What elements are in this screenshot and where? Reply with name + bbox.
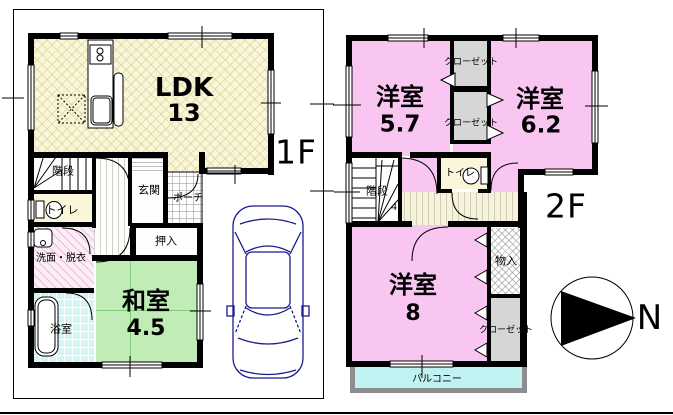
floor-plan: LDK 13 1F 階段 トイレ 玄関 ポーチ 洗面・脱衣 浴室 押入 和室 4… <box>0 0 673 415</box>
hall-1f <box>94 155 130 260</box>
western-8-size: 8 <box>405 303 420 325</box>
western-57-label: 洋室 <box>376 85 424 109</box>
western-62-entry <box>491 143 518 192</box>
landing-2f <box>398 158 437 192</box>
pink-patch <box>453 144 491 152</box>
futon-closet-label: 押入 <box>155 236 177 247</box>
floor2-label: 2F <box>545 190 587 223</box>
toilet-2f-label: トイレ <box>445 169 475 179</box>
western-8-label: 洋室 <box>389 273 437 297</box>
closet-bottom-label: クローゼット <box>479 327 533 336</box>
floor1-label: 1F <box>275 136 317 169</box>
balcony-label: バルコニー <box>412 375 462 385</box>
closet-mid-label: クローゼット <box>444 120 498 129</box>
western-62-size: 6.2 <box>521 115 562 138</box>
closet-top-label: クローゼット <box>444 59 498 68</box>
washroom-label: 洗面・脱衣 <box>36 254 86 264</box>
toilet-1f-label: トイレ <box>46 205 79 216</box>
bathroom-label: 浴室 <box>50 324 72 335</box>
north-label: N <box>637 301 663 335</box>
japanese-room-size: 4.5 <box>127 318 166 340</box>
room-closet-mid <box>453 92 487 140</box>
japanese-room-label: 和室 <box>122 289 170 313</box>
ldk-label: LDK <box>155 75 213 101</box>
western-62-label: 洋室 <box>516 87 564 111</box>
entrance-step <box>132 158 163 171</box>
stairs-2f-note: 4 <box>391 203 397 213</box>
stairs-2f-label: 階段 <box>366 186 388 197</box>
stairs-1f-label: 階段 <box>52 166 74 177</box>
western-57-size: 5.7 <box>380 114 421 137</box>
room-ldk <box>30 36 272 172</box>
ldk-size: 13 <box>167 101 200 125</box>
compass-icon <box>551 277 636 359</box>
entrance-label: 玄関 <box>138 185 160 196</box>
hall-2f <box>398 192 518 225</box>
storage-label: 物入 <box>495 256 517 267</box>
image-bottom-edge <box>0 412 673 414</box>
porch-label: ポーチ <box>173 194 203 204</box>
